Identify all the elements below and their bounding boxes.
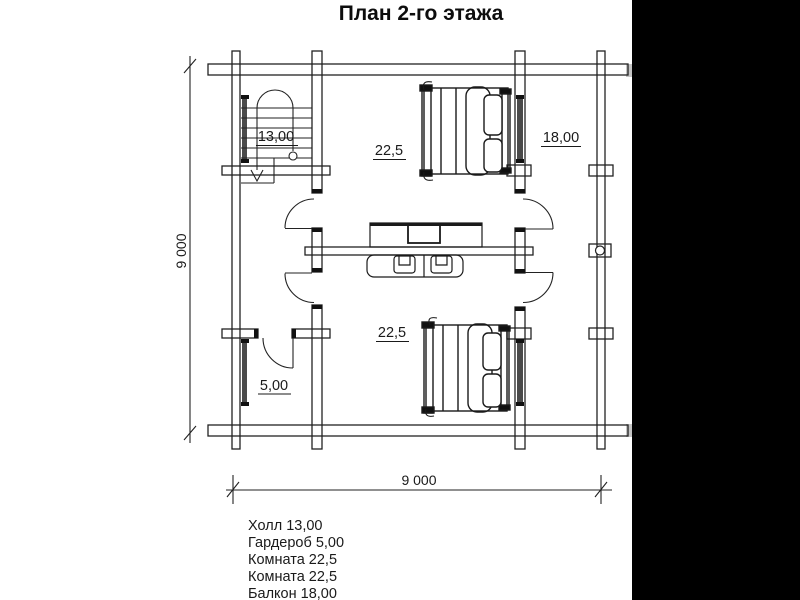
room-label-wardrobe: 5,00 [260,378,288,394]
legend-item-room1: Комната 22,5 [248,552,337,568]
legend-item-hall: Холл 13,00 [248,518,323,534]
floor-plan: План 2-го этажа [0,0,800,600]
slide-page: План 2-го этажа [0,0,800,600]
room-label-hall: 13,00 [258,129,294,145]
balcony-post-marker [596,246,605,255]
legend-item-wardrobe: Гардероб 5,00 [248,535,344,551]
legend-item-balcony: Балкон 18,00 [248,586,337,600]
page-title: План 2-го этажа [339,2,504,25]
letterbox-band [632,0,800,600]
dimension-width-value: 9 000 [401,472,436,488]
dimension-height-value: 9 000 [173,233,189,268]
room-label-lower: 22,5 [378,325,406,341]
legend-item-room2: Комната 22,5 [248,569,337,585]
wall-stub-shadow-bottom [626,424,632,437]
room-label-upper: 22,5 [375,143,403,159]
room-label-balcony: 18,00 [543,130,579,146]
